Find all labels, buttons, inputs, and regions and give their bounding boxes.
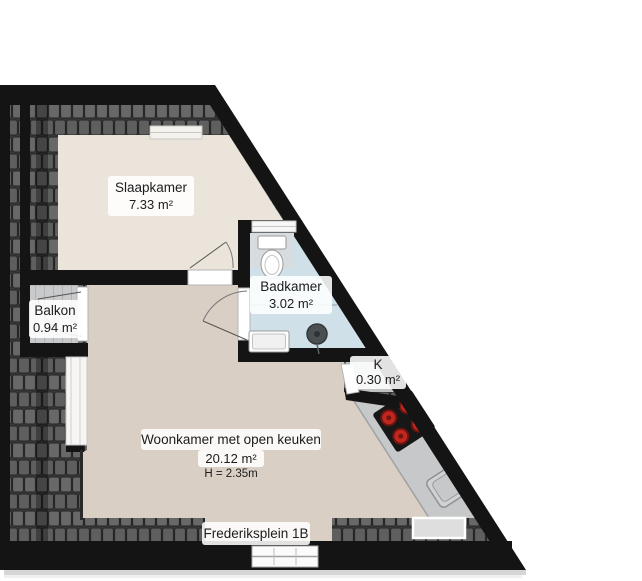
balkon-label: Balkon 0.94 m²	[29, 300, 81, 338]
svg-text:7.33 m²: 7.33 m²	[129, 197, 174, 212]
svg-text:0.30 m²: 0.30 m²	[356, 372, 401, 387]
svg-text:K: K	[373, 357, 382, 372]
wall-top	[0, 85, 215, 105]
svg-text:Slaapkamer: Slaapkamer	[115, 180, 188, 195]
svg-text:Balkon: Balkon	[34, 303, 75, 318]
wall-shadow	[4, 570, 526, 575]
svg-text:H = 2.35m: H = 2.35m	[204, 468, 257, 480]
wall-left	[0, 85, 10, 570]
svg-text:0.94 m²: 0.94 m²	[33, 320, 78, 335]
bathroom-sink-icon	[249, 331, 289, 352]
kast-label: K 0.30 m²	[350, 356, 406, 389]
roof-window	[413, 518, 465, 538]
window-bottom	[252, 546, 318, 567]
svg-text:3.02 m²: 3.02 m²	[269, 296, 314, 311]
wall-balkon-bottom	[20, 343, 88, 357]
address-label: Frederiksplein 1B	[202, 522, 310, 545]
slaapkamer-label: Slaapkamer 7.33 m²	[108, 176, 194, 216]
svg-text:20.12 m²: 20.12 m²	[205, 451, 257, 466]
window-slaapkamer-top	[150, 126, 202, 139]
wall-shadow-soft	[4, 575, 522, 578]
window-woonkamer-left	[66, 357, 87, 445]
svg-text:Badkamer: Badkamer	[260, 279, 322, 294]
svg-text:Frederiksplein 1B: Frederiksplein 1B	[203, 526, 308, 541]
floorplan-page: Slaapkamer 7.33 m² Badkamer 3.02 m² Balk…	[0, 0, 642, 581]
window-badkamer-top	[252, 221, 296, 232]
wall-knee-edge	[80, 450, 83, 520]
floorplan-drawing: Slaapkamer 7.33 m² Badkamer 3.02 m² Balk…	[0, 0, 642, 581]
badkamer-label: Badkamer 3.02 m²	[250, 276, 332, 314]
wall-interior-left	[20, 105, 30, 357]
svg-text:Woonkamer met open keuken: Woonkamer met open keuken	[141, 432, 321, 447]
